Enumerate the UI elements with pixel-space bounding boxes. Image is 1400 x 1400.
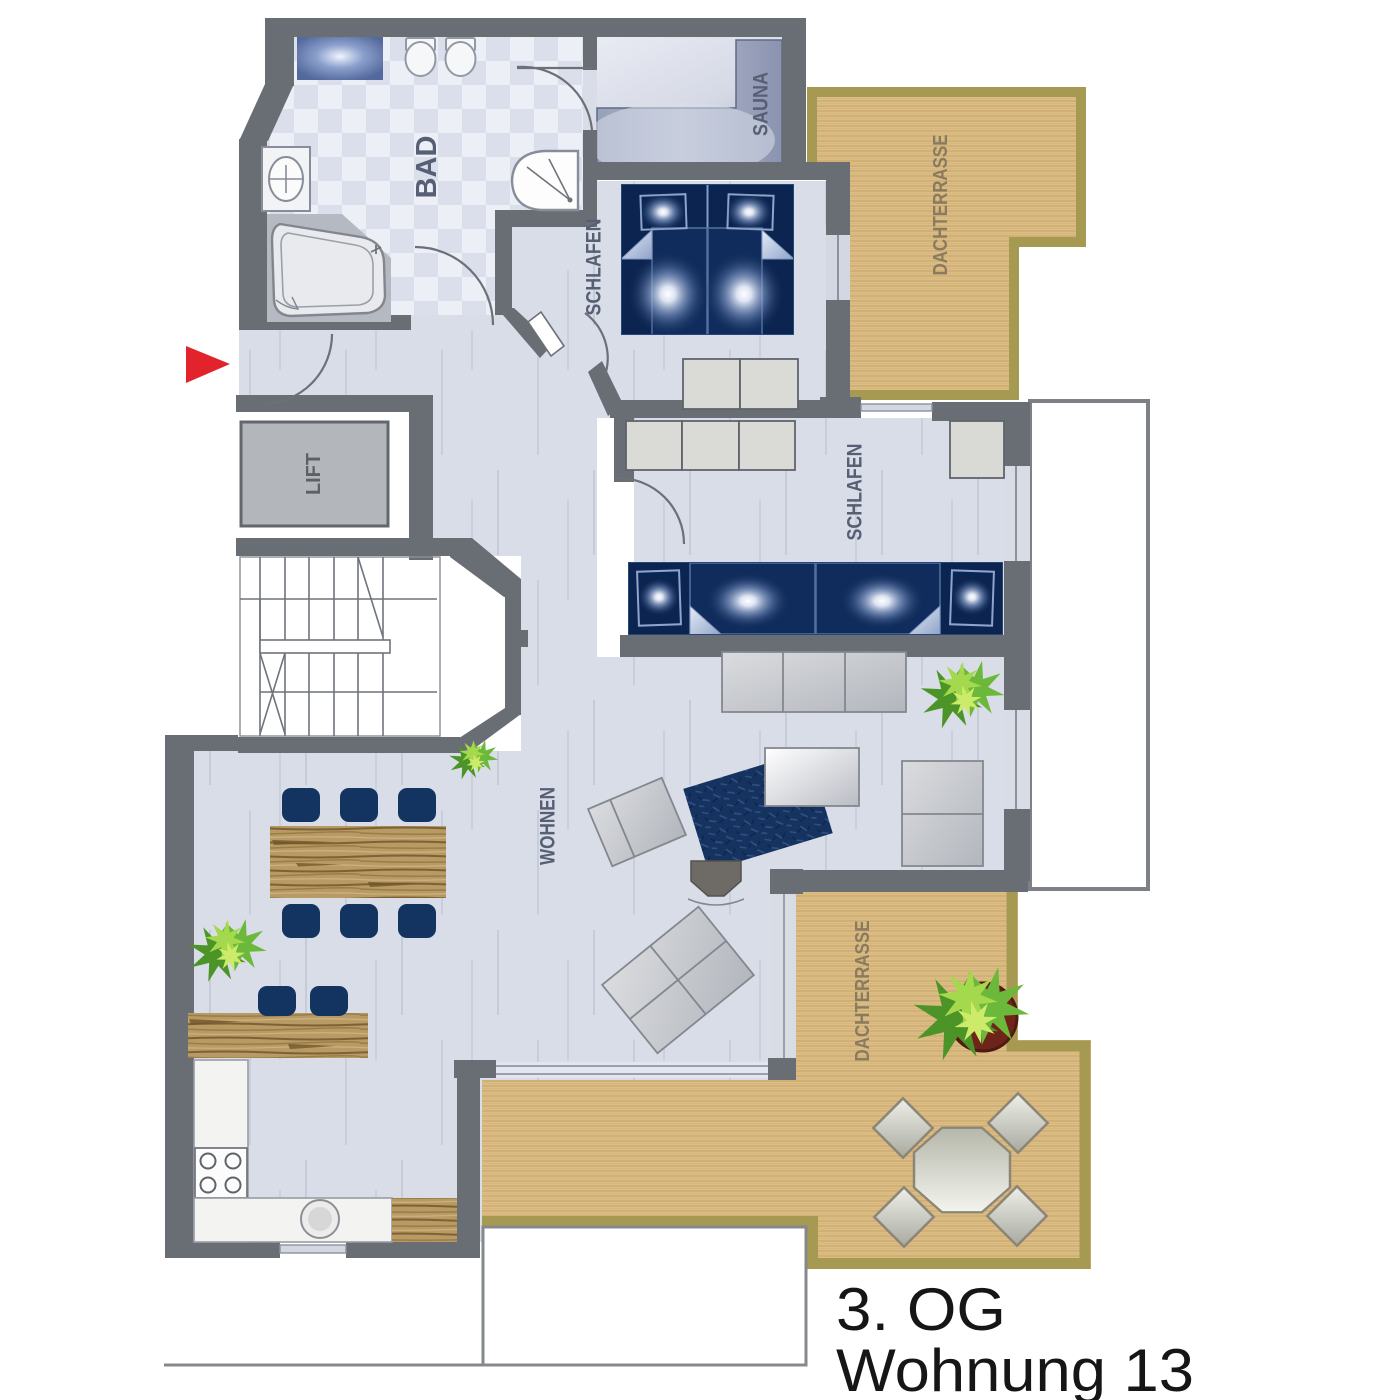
svg-text:BAD: BAD bbox=[411, 136, 443, 199]
svg-text:SCHLAFEN: SCHLAFEN bbox=[844, 444, 867, 541]
svg-text:3. OG: 3. OG bbox=[836, 1276, 1006, 1343]
svg-text:SCHLAFEN: SCHLAFEN bbox=[583, 219, 606, 316]
svg-text:LIFT: LIFT bbox=[303, 453, 325, 495]
svg-text:Wohnung 13: Wohnung 13 bbox=[836, 1337, 1194, 1400]
svg-text:WOHNEN: WOHNEN bbox=[537, 787, 560, 865]
svg-text:DACHTERRASSE: DACHTERRASSE bbox=[852, 921, 874, 1062]
svg-text:SAUNA: SAUNA bbox=[750, 72, 773, 136]
svg-text:DACHTERRASSE: DACHTERRASSE bbox=[930, 135, 952, 276]
